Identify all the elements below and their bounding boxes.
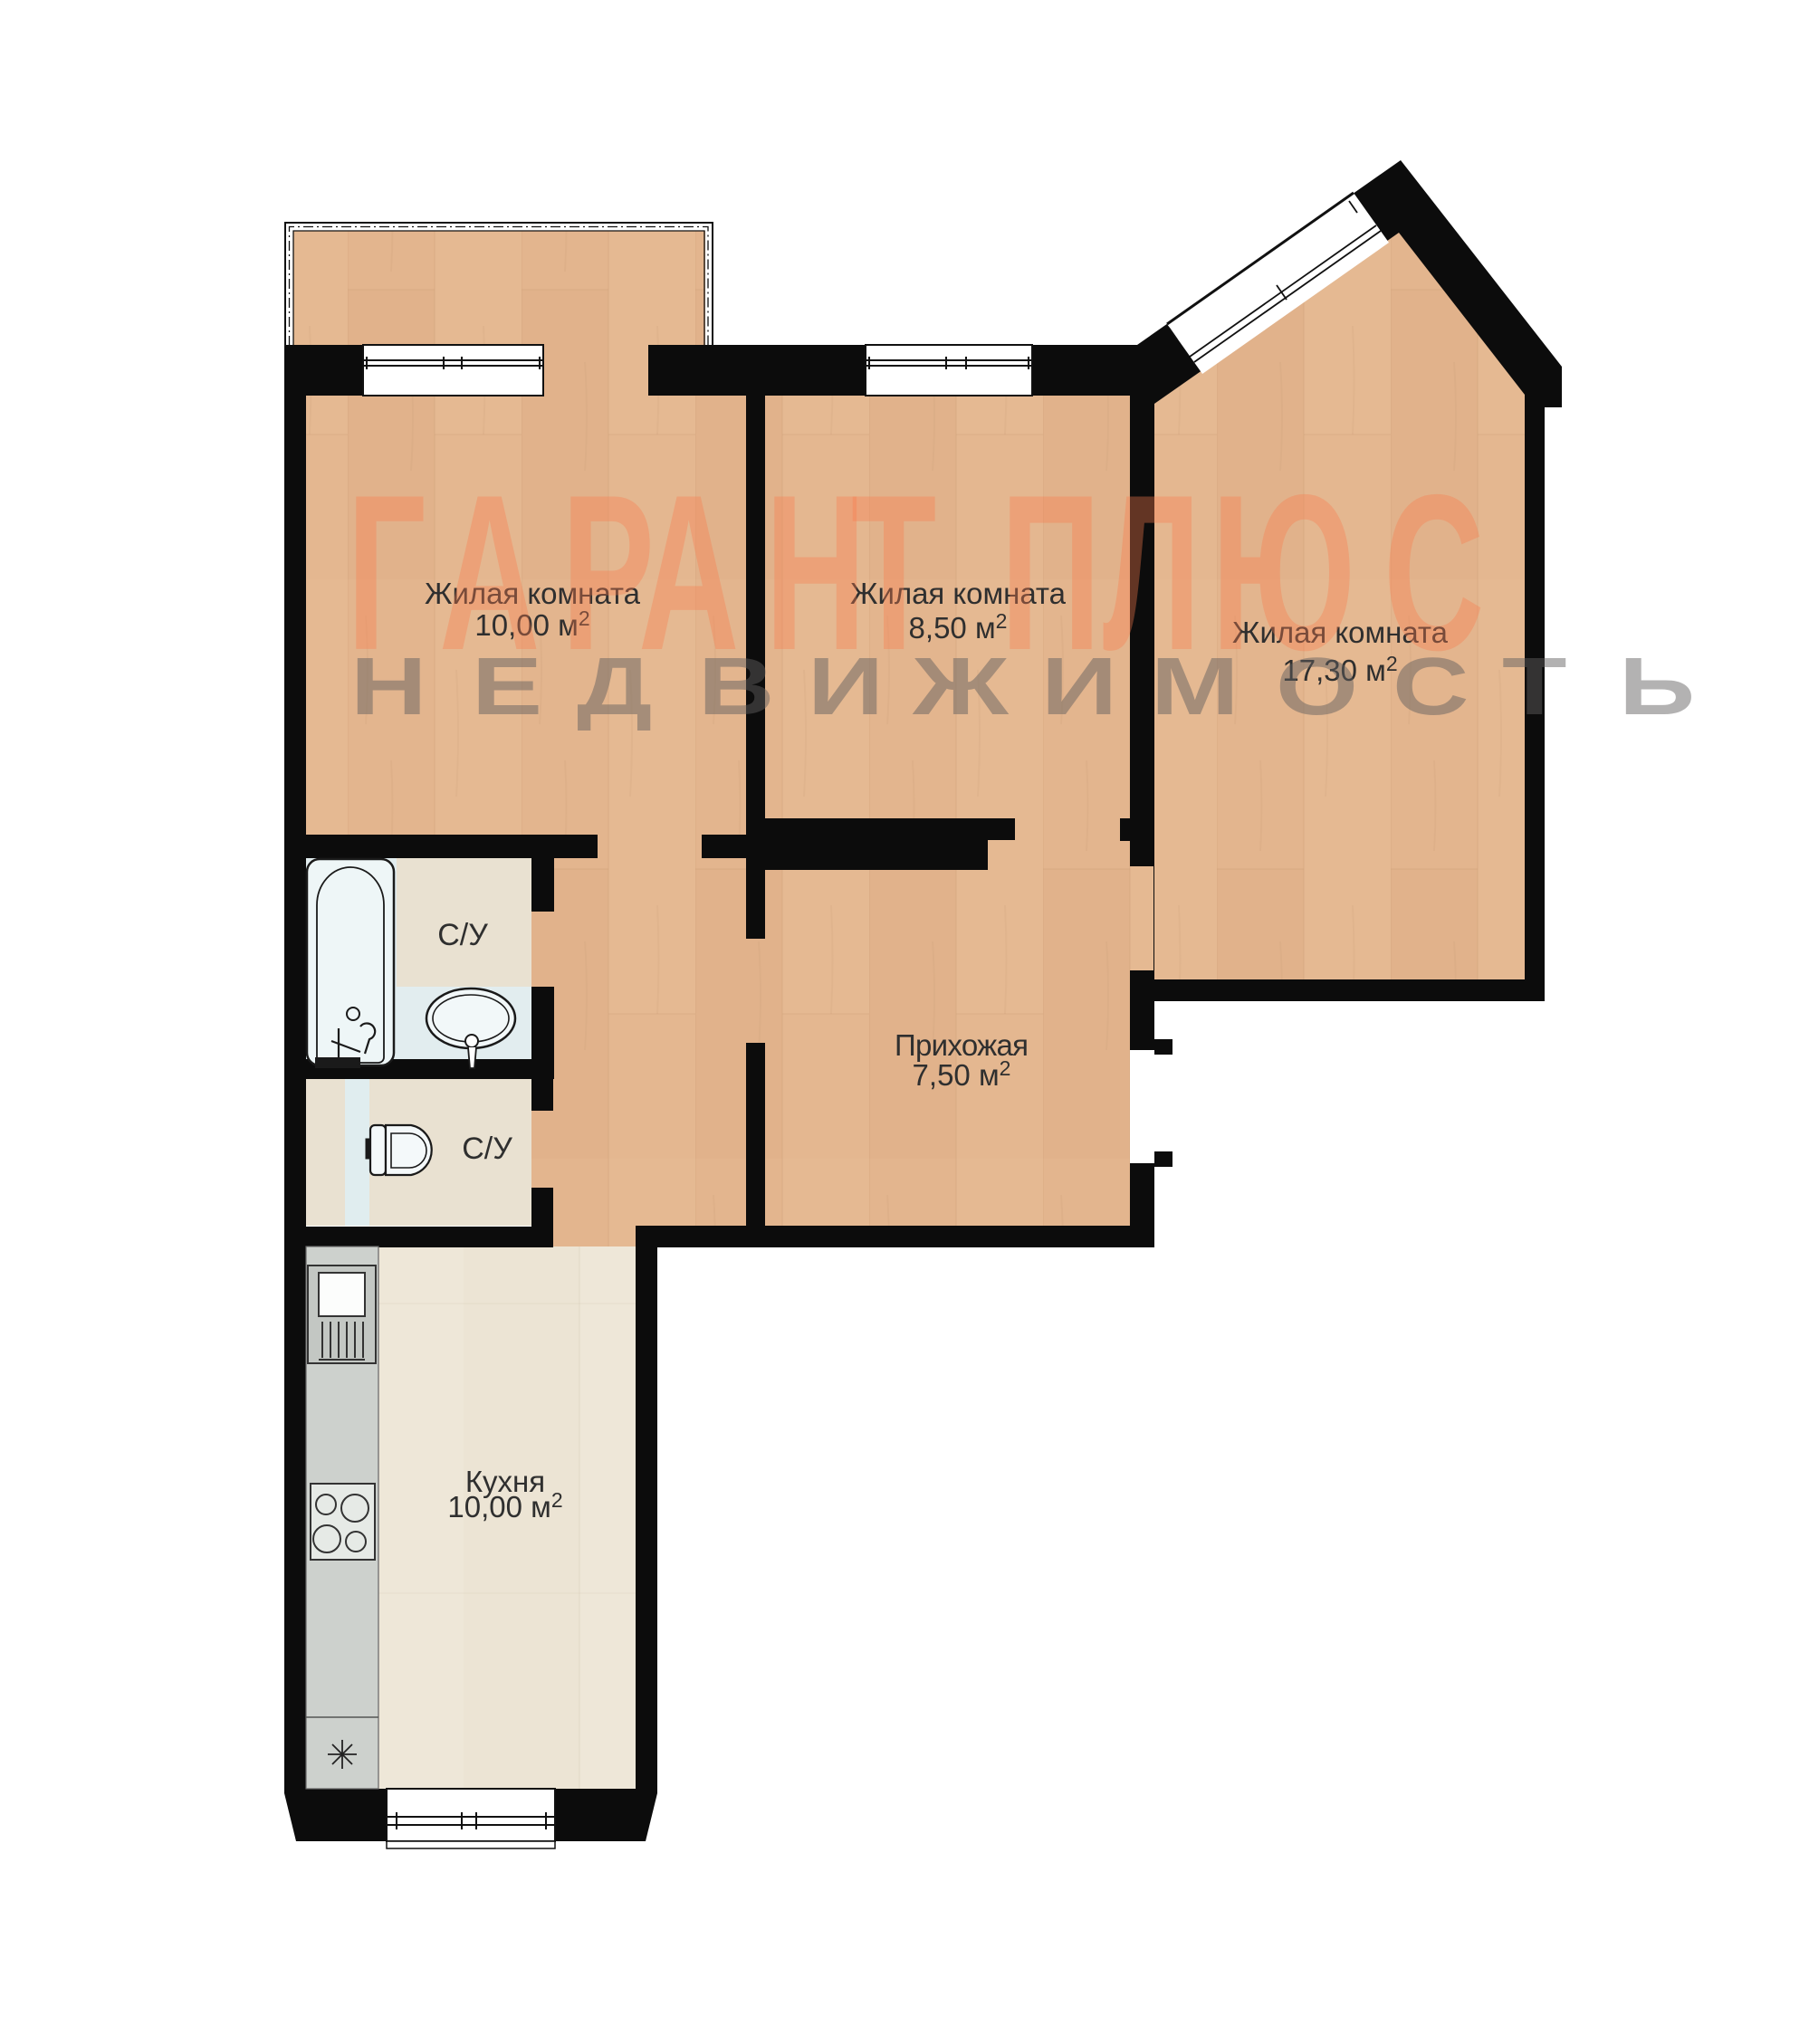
svg-text:Ж: Ж (912, 642, 1010, 732)
svg-text:О: О (1276, 642, 1358, 732)
svg-text:С/У: С/У (462, 1132, 512, 1166)
svg-text:С/У: С/У (437, 918, 488, 952)
svg-text:М: М (1151, 642, 1239, 732)
svg-text:Д: Д (577, 642, 652, 732)
svg-text:С: С (1393, 642, 1469, 732)
svg-text:И: И (1041, 642, 1117, 732)
svg-text:Т: Т (1502, 642, 1566, 732)
svg-text:Н: Н (350, 642, 426, 732)
svg-text:В: В (698, 642, 774, 732)
svg-text:10,00 м2: 10,00 м2 (447, 1488, 562, 1523)
svg-text:Е: Е (472, 642, 542, 732)
svg-text:7,50 м2: 7,50 м2 (913, 1056, 1011, 1092)
svg-text:Ь: Ь (1619, 642, 1695, 732)
svg-text:И: И (808, 642, 884, 732)
